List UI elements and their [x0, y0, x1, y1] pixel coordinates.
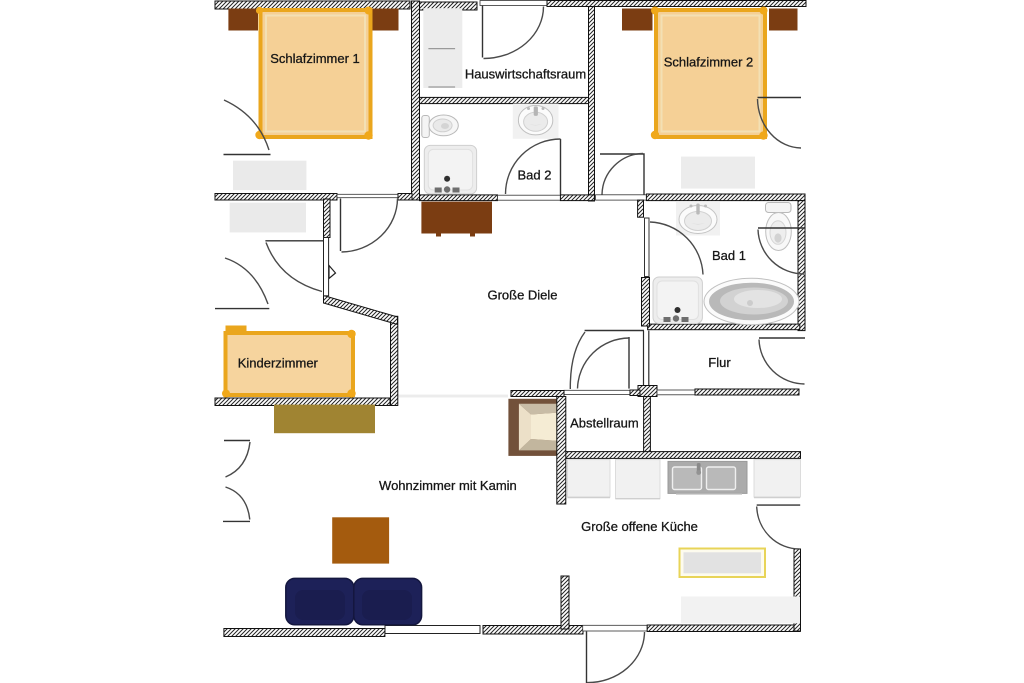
svg-text:Flur: Flur: [708, 355, 731, 370]
svg-text:Hauswirtschaftsraum: Hauswirtschaftsraum: [465, 67, 586, 82]
svg-text:Große Diele: Große Diele: [487, 288, 557, 303]
svg-text:Große offene Küche: Große offene Küche: [581, 519, 698, 534]
svg-text:Schlafzimmer 2: Schlafzimmer 2: [664, 55, 754, 70]
svg-text:Abstellraum: Abstellraum: [570, 416, 639, 431]
svg-text:Kinderzimmer: Kinderzimmer: [238, 356, 319, 371]
svg-text:Wohnzimmer mit Kamin: Wohnzimmer mit Kamin: [379, 478, 517, 493]
svg-text:Schlafzimmer 1: Schlafzimmer 1: [270, 51, 360, 66]
svg-text:Bad 1: Bad 1: [712, 248, 746, 263]
svg-text:Bad 2: Bad 2: [518, 168, 552, 183]
